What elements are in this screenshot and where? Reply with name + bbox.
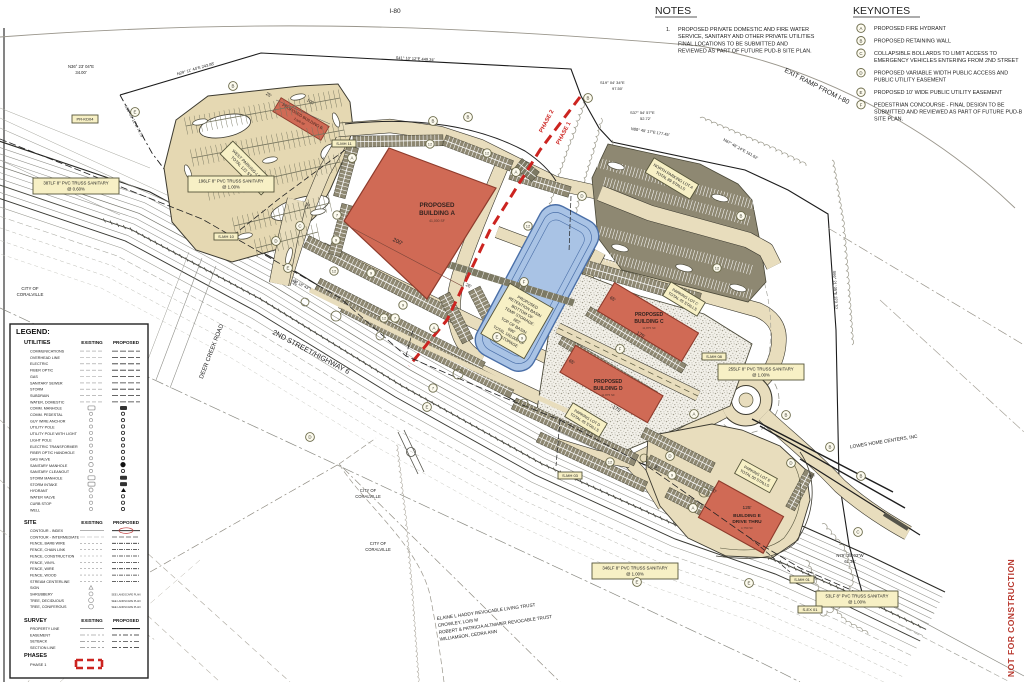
svg-text:12: 12 [332,268,337,273]
svg-text:CITY OF: CITY OF [21,286,39,291]
svg-text:A: A [433,326,436,331]
svg-text:NOTES: NOTES [655,5,691,17]
svg-text:PROPOSED: PROPOSED [635,312,664,318]
svg-text:EXISTING: EXISTING [81,340,103,345]
svg-text:12: 12 [526,223,531,228]
svg-text:FENCE, BARB WIRE: FENCE, BARB WIRE [30,542,66,546]
svg-text:S37° 54′ 57″E: S37° 54′ 57″E [630,110,655,115]
svg-text:SURVEY: SURVEY [24,618,47,624]
svg-text:SEE LANDSCAPE PLAN: SEE LANDSCAPE PLAN [111,605,140,609]
svg-text:GAS: GAS [30,375,38,379]
svg-text:125': 125' [743,505,752,511]
svg-text:FINAL LOCATIONS TO BE SUBMITTE: FINAL LOCATIONS TO BE SUBMITTED AND [678,41,788,47]
svg-text:12: 12 [715,265,720,270]
svg-text:1.: 1. [666,27,671,33]
svg-text:GUY WIRE ANCHOR: GUY WIRE ANCHOR [30,419,66,423]
svg-text:D: D [580,194,583,199]
svg-text:UTILITY POLE: UTILITY POLE [30,426,55,430]
svg-text:41,000 SF: 41,000 SF [429,219,445,223]
svg-text:CITY OF: CITY OF [370,541,387,546]
svg-text:F: F [619,347,622,352]
svg-text:EASEMENT: EASEMENT [30,633,51,637]
svg-text:PEDESTRIAN CONCOURSE - FINAL D: PEDESTRIAN CONCOURSE - FINAL DESIGN TO B… [874,103,1005,109]
svg-text:387LF 8" PVC TRUSS SANITARY: 387LF 8" PVC TRUSS SANITARY [43,181,108,186]
svg-text:@ 1.00%: @ 1.00% [222,184,240,189]
svg-text:STREAM CENTERLINE: STREAM CENTERLINE [30,580,70,584]
svg-text:COMM. MANHOLE: COMM. MANHOLE [30,407,63,411]
svg-text:UTILITIES: UTILITIES [24,340,51,346]
svg-text:C: C [856,530,859,535]
svg-text:STORM: STORM [30,388,43,392]
svg-text:BUILDING E: BUILDING E [733,513,762,519]
svg-text:S-MH 01: S-MH 01 [794,577,811,582]
svg-text:EMERGENCY VEHICLES ENTERING FR: EMERGENCY VEHICLES ENTERING FROM 2ND STR… [874,58,1019,64]
svg-text:FENCE, WOOD: FENCE, WOOD [30,573,57,577]
svg-text:E: E [496,335,499,340]
svg-text:B: B [232,84,235,89]
svg-text:TREE, DECIDUOUS: TREE, DECIDUOUS [30,599,65,603]
svg-text:A: A [860,26,863,31]
svg-text:PROPOSED 10' WIDE PUBLIC UTILI: PROPOSED 10' WIDE PUBLIC UTILITY EASEMEN… [874,90,1003,96]
svg-text:B: B [467,115,470,120]
svg-text:S19° 04′ 34″E: S19° 04′ 34″E [600,80,625,85]
svg-text:TREE, CONIFEROUS: TREE, CONIFEROUS [30,605,67,609]
svg-text:PR-KD04: PR-KD04 [77,116,95,121]
svg-text:12: 12 [382,315,387,320]
svg-text:@ 1.00%: @ 1.00% [626,571,644,576]
svg-text:D: D [274,239,277,244]
svg-text:COMM. PEDESTAL: COMM. PEDESTAL [30,413,63,417]
svg-text:COLLAPSIBLE BOLLARDS TO LIMIT: COLLAPSIBLE BOLLARDS TO LIMIT ACCESS TO [874,51,997,57]
svg-text:@ 1.00%: @ 1.00% [752,372,770,377]
svg-text:I-80: I-80 [389,8,401,15]
svg-text:F: F [523,280,526,285]
svg-text:LEGEND:: LEGEND: [16,327,50,336]
svg-text:N36° 23′ 04″E: N36° 23′ 04″E [68,64,94,69]
svg-text:OVERHEAD LINE: OVERHEAD LINE [30,356,60,360]
svg-text:PROPOSED PRIVATE DOMESTIC AND: PROPOSED PRIVATE DOMESTIC AND FIRE WATER [678,27,809,33]
svg-text:CONTOUR - INTERMEDIATE: CONTOUR - INTERMEDIATE [30,535,80,539]
svg-text:C: C [298,224,301,229]
svg-text:FENCE, VINYL: FENCE, VINYL [30,561,55,565]
svg-text:FIBER OPTIC HANDHOLE: FIBER OPTIC HANDHOLE [30,451,75,455]
svg-text:PROPOSED RETAINING WALL: PROPOSED RETAINING WALL [874,39,951,45]
svg-text:@ 1.00%: @ 1.00% [848,599,866,604]
svg-text:SITE: SITE [24,520,37,526]
svg-text:SITE PLAN.: SITE PLAN. [874,117,903,123]
svg-text:ELECTRIC: ELECTRIC [30,362,49,366]
svg-text:SERVICE, SANITARY AND OTHER PR: SERVICE, SANITARY AND OTHER PRIVATE UTIL… [678,34,815,40]
svg-text:PROPOSED: PROPOSED [113,340,140,345]
svg-text:SUBDRAIN: SUBDRAIN [30,394,49,398]
svg-text:FENCE, CHAIN LINK: FENCE, CHAIN LINK [30,548,66,552]
svg-text:PUBLIC UTILITY EASEMENT: PUBLIC UTILITY EASEMENT [874,78,947,84]
svg-text:S-EX 01: S-EX 01 [803,607,819,612]
svg-text:WATER VALVE: WATER VALVE [30,496,56,500]
svg-text:GAS VALVE: GAS VALVE [30,457,51,461]
svg-text:S-MH 03: S-MH 03 [562,473,579,478]
svg-text:PROPOSED: PROPOSED [594,379,623,385]
svg-text:COMMUNICATIONS: COMMUNICATIONS [30,350,65,354]
svg-text:A: A [351,156,354,161]
svg-text:61.35': 61.35' [844,559,855,564]
svg-text:BUILDING D: BUILDING D [593,386,623,392]
svg-text:HYDRANT: HYDRANT [30,489,49,493]
svg-text:SHRUBBERY: SHRUBBERY [30,593,53,597]
svg-text:C: C [859,51,862,56]
svg-text:S-MH 08: S-MH 08 [706,354,723,359]
svg-text:BUILDING C: BUILDING C [634,319,664,325]
svg-text:196LF 8" PVC TRUSS SANITARY: 196LF 8" PVC TRUSS SANITARY [198,179,263,184]
svg-text:NOT FOR CONSTRUCTION: NOT FOR CONSTRUCTION [1006,559,1016,677]
svg-text:CORALVILLE: CORALVILLE [355,494,381,499]
svg-text:B: B [829,445,832,450]
svg-text:PROPOSED: PROPOSED [113,520,140,525]
svg-text:255LF 8" PVC TRUSS SANITARY: 255LF 8" PVC TRUSS SANITARY [728,367,793,372]
svg-text:PHASES: PHASES [24,653,47,659]
svg-text:LIGHT POLE: LIGHT POLE [30,438,52,442]
svg-text:PROPOSED VARIABLE WIDTH PUBLIC: PROPOSED VARIABLE WIDTH PUBLIC ACCESS AN… [874,71,1008,77]
svg-text:DRIVE THRU: DRIVE THRU [732,519,762,525]
svg-text:STORM INTAKE: STORM INTAKE [30,483,58,487]
svg-text:FENCE, WIRE: FENCE, WIRE [30,567,55,571]
svg-text:EXISTING: EXISTING [81,520,103,525]
svg-text:PROPOSED FIRE HYDRANT: PROPOSED FIRE HYDRANT [874,26,947,32]
svg-text:S-MH 11: S-MH 11 [336,141,352,146]
svg-text:SETBACK: SETBACK [30,640,48,644]
svg-text:UTILITY POLE WITH LIGHT: UTILITY POLE WITH LIGHT [30,432,78,436]
svg-text:N79° 35′ 03″W: N79° 35′ 03″W [836,553,863,558]
svg-text:REVIEWED AS PART OF FUTURE PUD: REVIEWED AS PART OF FUTURE PUD-B SITE PL… [678,49,812,55]
svg-text:SUBMITTED AND REVIEWED AS PART: SUBMITTED AND REVIEWED AS PART OF FUTURE… [874,110,1023,116]
svg-text:EXISTING: EXISTING [81,618,103,623]
svg-text:STORM MANHOLE: STORM MANHOLE [30,477,63,481]
svg-text:CONTOUR - INDEX: CONTOUR - INDEX [30,529,64,533]
svg-text:CURB STOP: CURB STOP [30,502,52,506]
svg-text:SEE LANDSCAPE PLAN: SEE LANDSCAPE PLAN [111,593,140,597]
svg-text:S-MH 10: S-MH 10 [218,234,235,239]
svg-text:CORALVILLE: CORALVILLE [17,292,44,297]
svg-text:FIBER OPTIC: FIBER OPTIC [30,369,53,373]
svg-text:346LF 8" PVC TRUSS SANITARY: 346LF 8" PVC TRUSS SANITARY [602,566,667,571]
svg-text:CITY OF: CITY OF [360,488,377,493]
svg-text:KEYNOTES: KEYNOTES [853,5,910,17]
svg-text:B: B [432,119,435,124]
svg-text:CORALVILLE: CORALVILLE [365,547,391,552]
svg-text:53LF 8" PVC TRUSS SANITARY: 53LF 8" PVC TRUSS SANITARY [826,594,889,599]
svg-text:WATER, DOMESTIC: WATER, DOMESTIC [30,400,65,404]
svg-text:4,750 SF: 4,750 SF [741,526,753,530]
svg-text:ELECTRIC TRANSFORMER: ELECTRIC TRANSFORMER [30,445,78,449]
svg-text:F: F [860,102,863,107]
svg-text:E: E [636,580,639,585]
svg-text:SECTION LINE: SECTION LINE [30,646,56,650]
svg-text:E: E [748,581,751,586]
svg-text:B: B [860,474,863,479]
svg-text:B: B [860,38,863,43]
svg-text:E: E [287,266,290,271]
svg-text:E: E [426,405,429,410]
svg-text:12: 12 [428,141,433,146]
svg-text:E: E [860,90,863,95]
svg-text:@ 0.60%: @ 0.60% [67,186,85,191]
svg-text:SANITARY MANHOLE: SANITARY MANHOLE [30,464,68,468]
svg-text:B: B [785,413,788,418]
svg-text:B: B [587,96,590,101]
svg-text:A: A [515,170,518,175]
svg-text:FENCE, CONSTRUCTION: FENCE, CONSTRUCTION [30,554,75,558]
svg-text:D: D [668,454,671,459]
svg-text:12: 12 [608,459,613,464]
svg-text:SANITARY SEWER: SANITARY SEWER [30,381,63,385]
svg-text:BUILDING A: BUILDING A [419,210,455,217]
svg-text:SIGN: SIGN [30,586,39,590]
svg-text:52.72': 52.72' [640,116,651,121]
svg-text:PROPERTY LINE: PROPERTY LINE [30,627,60,631]
svg-text:E: E [134,110,137,115]
svg-text:97.50': 97.50' [612,86,623,91]
svg-text:D: D [308,435,311,440]
svg-text:PHASE 1: PHASE 1 [30,662,46,667]
svg-text:SEE LANDSCAPE PLAN: SEE LANDSCAPE PLAN [111,599,140,603]
svg-text:11,875 SF: 11,875 SF [642,326,656,330]
svg-text:11,875 SF: 11,875 SF [601,393,615,397]
svg-text:WELL: WELL [30,508,40,512]
svg-text:B: B [740,214,743,219]
svg-text:A: A [693,412,696,417]
svg-text:D: D [859,70,862,75]
svg-text:D: D [789,461,792,466]
svg-text:PROPOSED: PROPOSED [419,202,455,209]
svg-text:SANITARY CLEANOUT: SANITARY CLEANOUT [30,470,70,474]
svg-text:PROPOSED: PROPOSED [113,618,140,623]
svg-text:12: 12 [485,150,490,155]
svg-text:34.00': 34.00' [75,70,86,75]
svg-text:A: A [692,506,695,511]
